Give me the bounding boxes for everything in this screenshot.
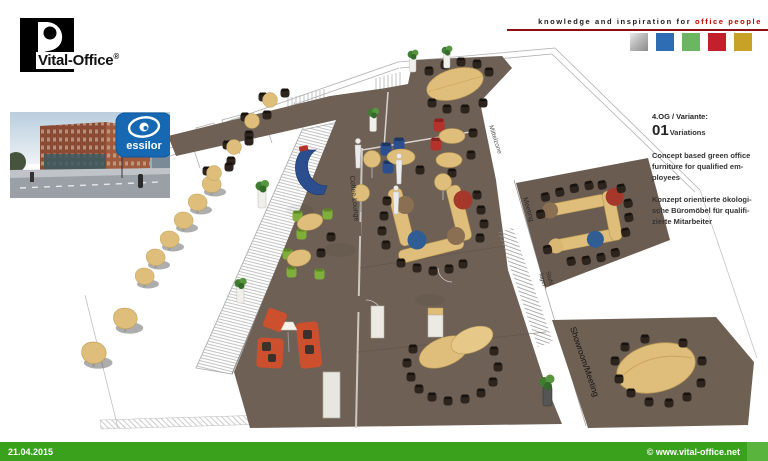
brand-square-blue	[656, 33, 674, 51]
tagline-divider	[507, 29, 768, 31]
slide: Coffee Lounge Mittelzone Meeting Stuhl l…	[0, 0, 768, 461]
essilor-logo-text: essilor	[126, 140, 162, 152]
variant-label: 4.OG / Variante:	[652, 112, 764, 121]
brand-square-gold	[734, 33, 752, 51]
brand-square-green	[682, 33, 700, 51]
meeting-floor	[516, 158, 670, 288]
brand-square-red	[708, 33, 726, 51]
description-german: Konzept orientierte ökologi- sche Büromö…	[652, 194, 764, 227]
variant-row: 01 Variations	[652, 122, 764, 139]
floorplan-rendering: Coffee Lounge Mittelzone Meeting Stuhl l…	[0, 0, 768, 461]
footer-bar: 21.04.2015 © www.vital-office.net	[0, 442, 768, 461]
building-photo: essilor	[10, 112, 170, 198]
info-panel: 4.OG / Variante: 01 Variations Concept b…	[652, 112, 764, 227]
description-english: Concept based green office furniture for…	[652, 150, 764, 183]
essilor-logo: essilor	[116, 113, 170, 157]
terrace-organic-tables	[82, 176, 226, 369]
vital-office-logo-text: Vital-Office®	[36, 52, 121, 69]
brand-square-silver	[630, 33, 648, 51]
footer-light-segment	[747, 442, 768, 461]
variant-number: 01	[652, 122, 669, 139]
brand-color-squares	[630, 33, 752, 51]
registered-mark: ®	[113, 52, 119, 61]
footer-date: 21.04.2015	[0, 447, 53, 457]
tagline-office-people: office people	[695, 17, 762, 26]
variant-suffix: Variations	[670, 128, 706, 137]
tagline: knowledge and inspiration for office peo…	[538, 17, 762, 26]
